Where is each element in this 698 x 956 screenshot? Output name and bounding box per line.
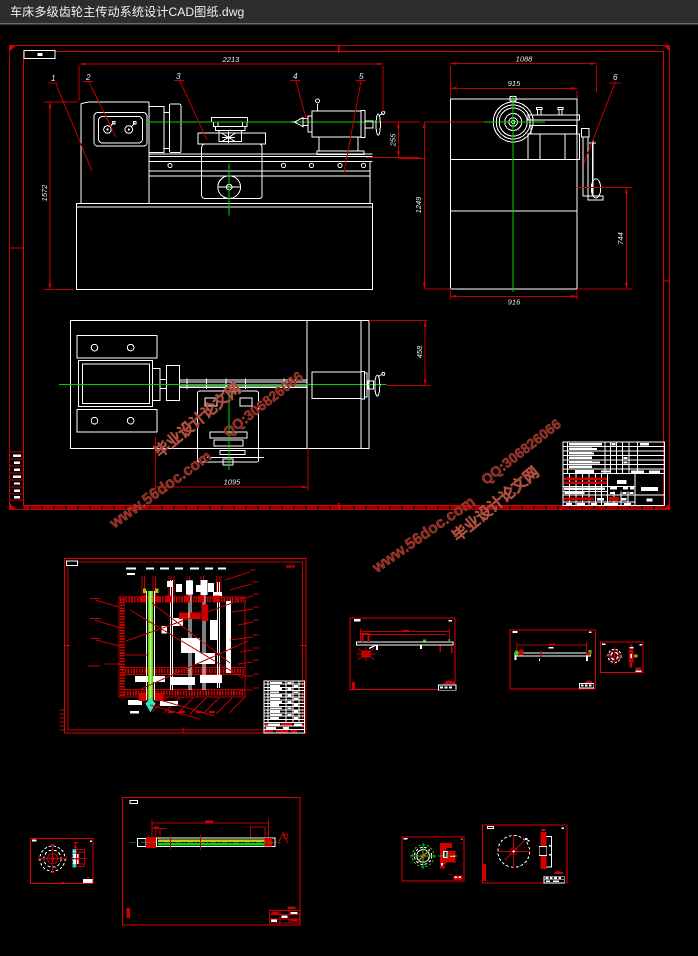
- svg-text:744: 744: [616, 232, 625, 245]
- svg-text:1088: 1088: [516, 55, 534, 64]
- svg-text:3: 3: [176, 72, 181, 81]
- svg-text:255: 255: [389, 133, 398, 147]
- svg-text:1095: 1095: [224, 478, 242, 487]
- svg-text:915: 915: [508, 79, 521, 88]
- svg-text:916: 916: [508, 298, 521, 307]
- svg-text:2: 2: [85, 73, 91, 82]
- svg-text:1249: 1249: [414, 196, 423, 214]
- svg-text:2213: 2213: [222, 55, 241, 64]
- svg-text:6: 6: [613, 73, 618, 82]
- svg-text:4: 4: [293, 72, 298, 81]
- svg-text:车床多级齿轮主传动系统设计CAD图纸.dwg: 车床多级齿轮主传动系统设计CAD图纸.dwg: [10, 4, 244, 19]
- svg-text:5: 5: [359, 72, 364, 81]
- svg-text:458: 458: [415, 345, 424, 358]
- svg-text:1572: 1572: [40, 184, 49, 202]
- svg-text:1: 1: [51, 74, 56, 83]
